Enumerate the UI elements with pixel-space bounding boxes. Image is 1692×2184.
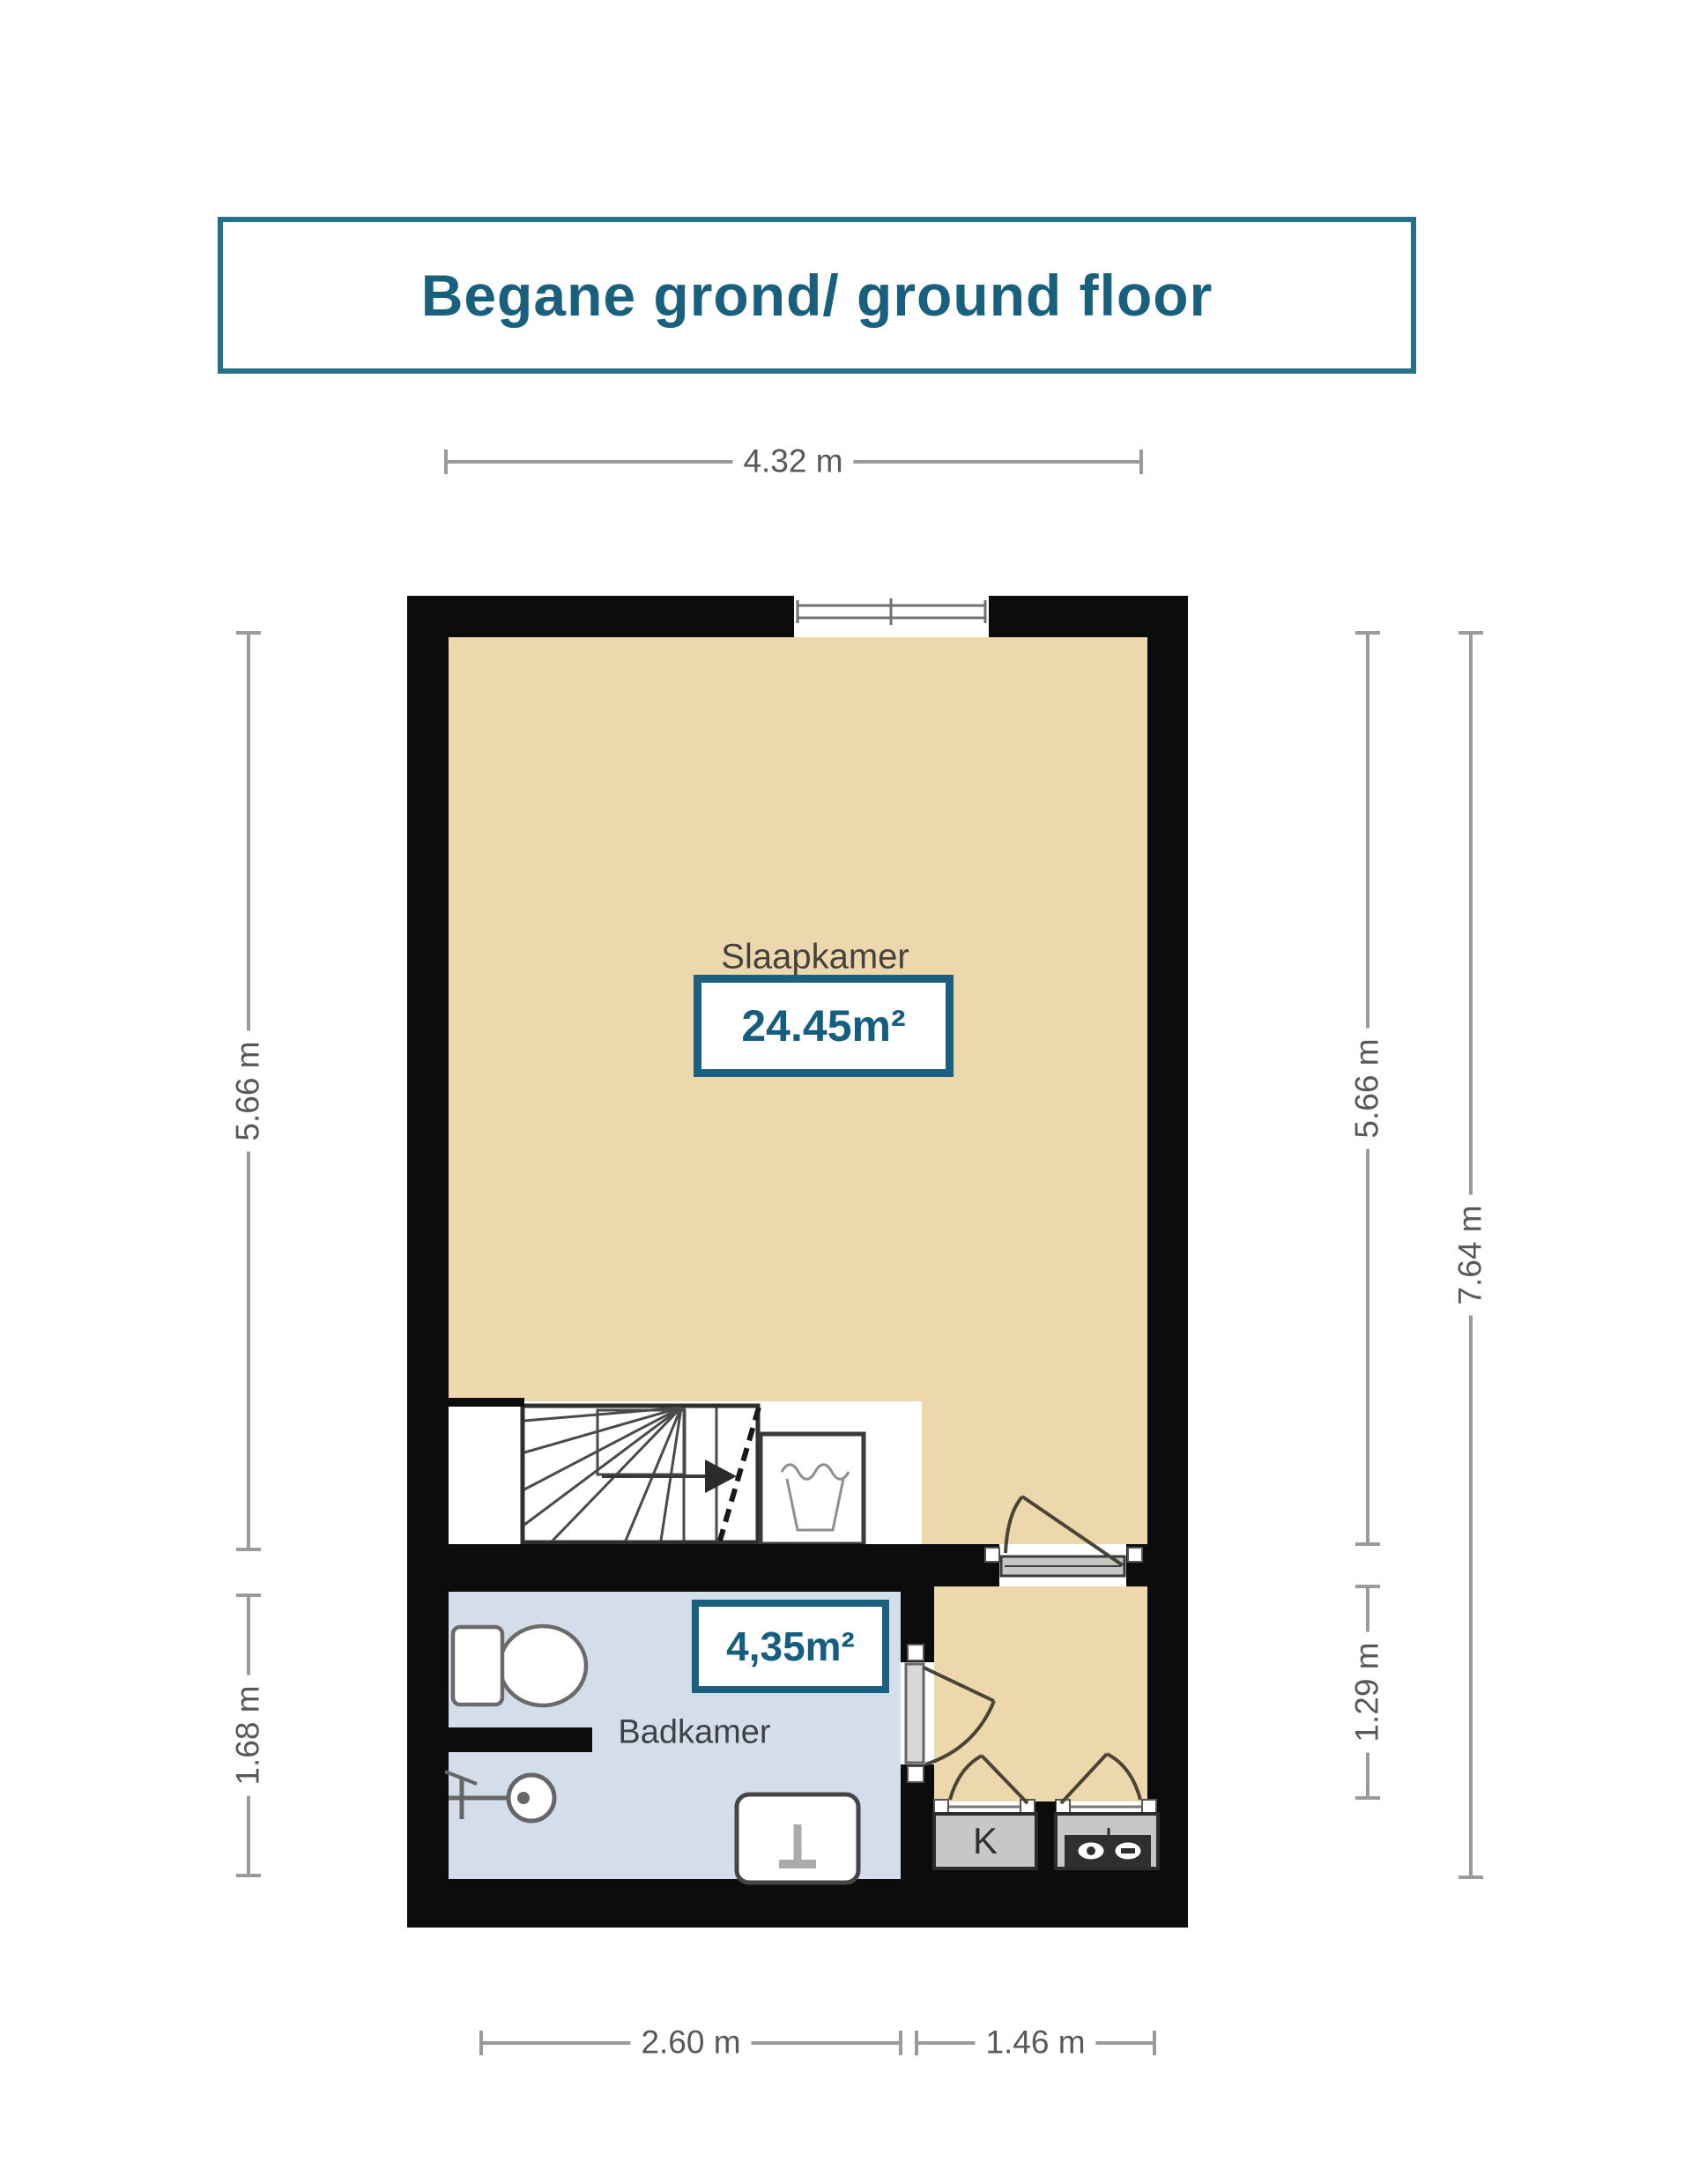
dimension-top-label: 4.32 m (732, 444, 853, 480)
dimension-bottom-right-label: 1.46 m (975, 2025, 1095, 2061)
dimension-right-lower-label: 1.29 m (1350, 1631, 1386, 1752)
dimension-right-upper-label: 5.66 m (1350, 1028, 1386, 1148)
page-title: Begane grond/ ground floor (421, 262, 1213, 329)
bedroom-area-value: 24.45m² (741, 1000, 905, 1051)
dimension-bottom-left-label: 2.60 m (630, 2025, 751, 2061)
kitchen-unit-label: K (973, 1820, 998, 1862)
washing-machine-icon (761, 1434, 864, 1544)
sink-icon (737, 1794, 858, 1883)
dimension-left-upper-label: 5.66 m (231, 1030, 267, 1151)
bedroom-area-box: 24.45m² (694, 975, 954, 1077)
dimension-left-lower-label: 1.68 m (231, 1675, 267, 1795)
floor-plan-page: Begane grond/ ground floor 4.32 m 2.60 m… (0, 0, 1692, 2184)
bathroom-area-value: 4,35m² (726, 1623, 855, 1670)
stove-icon (1056, 1814, 1158, 1868)
toilet-partition-wall (449, 1727, 592, 1752)
wall-under-stairs (407, 1544, 922, 1592)
title-box: Begane grond/ ground floor (218, 217, 1416, 374)
dimension-right-overall-label: 7.64 m (1453, 1194, 1489, 1315)
stair-cap-wall (449, 1398, 524, 1407)
bedroom-label: Slaapkamer (721, 938, 909, 977)
toilet-icon (453, 1626, 586, 1705)
window-icon (798, 598, 985, 625)
bathroom-label: Badkamer (618, 1714, 770, 1752)
bathroom-area-box: 4,35m² (692, 1600, 889, 1693)
